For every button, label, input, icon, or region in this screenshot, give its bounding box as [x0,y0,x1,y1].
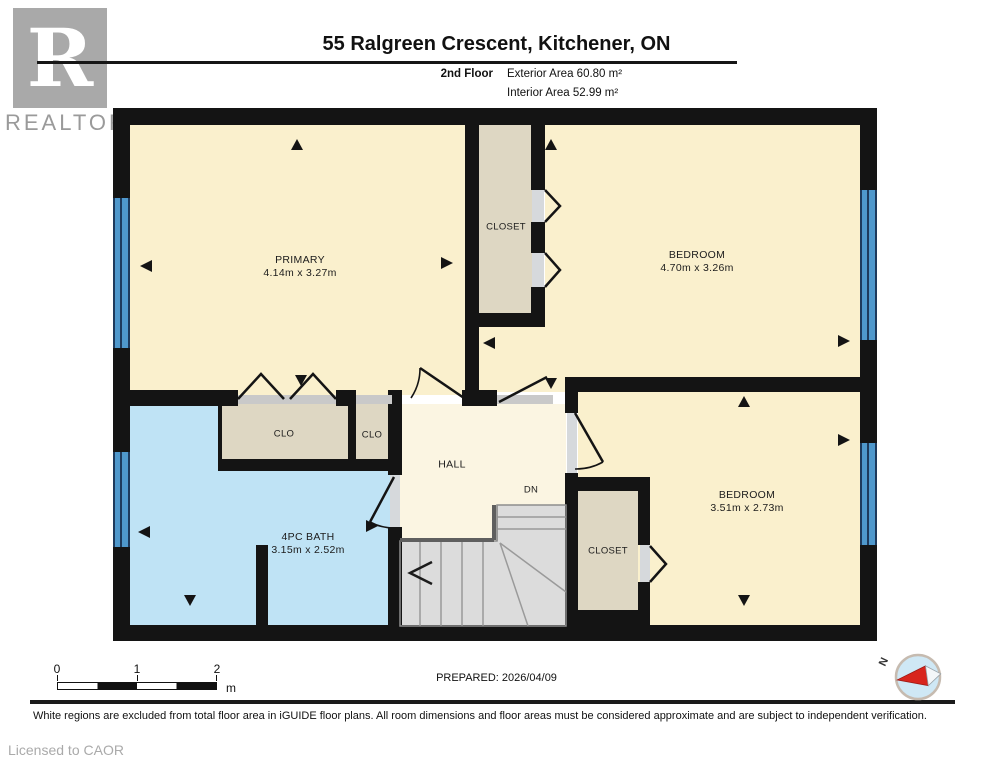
bifold-door-icon [650,546,666,582]
label-clo-large: CLO [274,428,294,441]
label-bedroom-top-right: BEDROOM 4.70m x 3.26m [660,249,733,275]
door-leaf [370,477,394,522]
door-swing-icon [575,462,603,469]
door-leaf [575,413,603,462]
label-closet-top: CLOSET [486,221,526,234]
stair-railing [400,505,494,540]
arrow-left-icon [140,260,152,272]
arrow-right-icon [838,335,850,347]
bifold-door-icons [238,190,666,582]
swing-door-icons [370,368,603,528]
compass-icon [893,652,943,702]
arrow-down-icon [295,375,307,386]
label-primary: PRIMARY 4.14m x 3.27m [263,254,336,280]
title-divider [37,61,737,64]
stair-down-arrow-icon [410,562,432,584]
label-bedroom-bottom-right: BEDROOM 3.51m x 2.73m [710,489,783,515]
arrow-down-icon [184,595,196,606]
arrow-up-icon [291,139,303,150]
arrow-right-icon [838,434,850,446]
bifold-door-icon [545,253,560,287]
label-bath: 4PC BATH 3.15m x 2.52m [271,531,344,557]
door-swing-icon [411,368,420,398]
arrow-down-icon [738,595,750,606]
bifold-door-icon [238,374,284,399]
floorplan-page: R 55 Ralgreen Crescent, Kitchener, ON RE… [0,0,993,768]
arrow-up-icon [738,396,750,407]
door-leaf [420,368,464,398]
arrow-left-icon [483,337,495,349]
arrow-down-icon [545,378,557,389]
arrow-right-icon [441,257,453,269]
arrow-left-icon [138,526,150,538]
label-clo-small: CLO [362,429,382,442]
plan-symbols [0,0,993,768]
arrow-right-icon [366,520,378,532]
label-stairs-dn: DN [524,484,538,497]
bifold-door-icon [545,190,560,222]
label-hall: HALL [438,459,465,472]
door-leaf [499,377,547,402]
arrow-up-icon [545,139,557,150]
label-closet-bottom: CLOSET [588,545,628,558]
